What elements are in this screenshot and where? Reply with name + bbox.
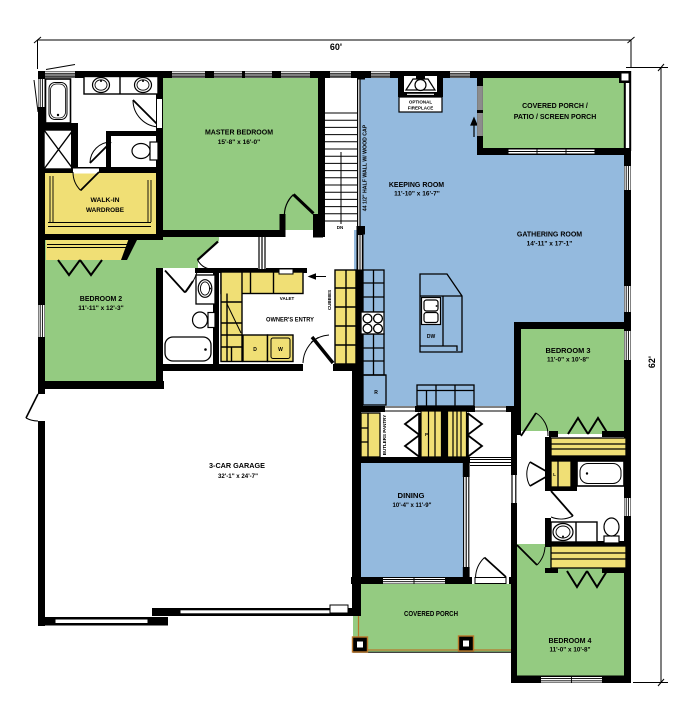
svg-text:WARDROBE: WARDROBE: [86, 207, 125, 214]
svg-text:11'-11" x 12'-3": 11'-11" x 12'-3": [78, 305, 123, 312]
svg-text:62': 62': [647, 356, 657, 368]
svg-text:D: D: [253, 347, 257, 353]
svg-text:VALET: VALET: [280, 296, 295, 301]
svg-text:BEDROOM 4: BEDROOM 4: [549, 638, 592, 645]
svg-text:BEDROOM 3: BEDROOM 3: [546, 348, 591, 355]
svg-text:14'-11" x 17'-1": 14'-11" x 17'-1": [527, 241, 573, 248]
svg-text:11'-10" x 16'-7": 11'-10" x 16'-7": [394, 191, 440, 198]
svg-text:L: L: [553, 472, 556, 477]
svg-text:DN: DN: [337, 225, 344, 230]
svg-text:WALK-IN: WALK-IN: [91, 197, 120, 204]
svg-text:DINING: DINING: [398, 493, 426, 500]
svg-text:DW: DW: [427, 334, 436, 340]
svg-text:W: W: [278, 347, 283, 353]
svg-text:11'-0" x 10'-8": 11'-0" x 10'-8": [547, 357, 589, 364]
svg-text:CUBBIES: CUBBIES: [327, 290, 332, 310]
svg-text:COVERED PORCH: COVERED PORCH: [404, 611, 458, 618]
svg-text:10'-4" x 11'-9": 10'-4" x 11'-9": [393, 502, 432, 509]
svg-text:OWNER'S ENTRY: OWNER'S ENTRY: [266, 317, 315, 324]
svg-text:44 1/2" HALF WALL W/ WOOD CAP: 44 1/2" HALF WALL W/ WOOD CAP: [363, 124, 369, 211]
svg-text:KEEPING ROOM: KEEPING ROOM: [389, 182, 444, 189]
svg-text:BUTLERS PANTRY: BUTLERS PANTRY: [382, 415, 387, 456]
svg-text:11'-0" x 10'-8": 11'-0" x 10'-8": [550, 647, 591, 654]
svg-text:PATIO / SCREEN PORCH: PATIO / SCREEN PORCH: [514, 114, 597, 121]
svg-text:OPTIONAL: OPTIONAL: [409, 100, 433, 105]
svg-text:COVERED PORCH /: COVERED PORCH /: [522, 103, 588, 110]
svg-text:3-CAR GARAGE: 3-CAR GARAGE: [209, 463, 265, 470]
svg-text:32'-1" x 24'-7": 32'-1" x 24'-7": [218, 473, 258, 480]
svg-text:FIREPLACE: FIREPLACE: [408, 106, 434, 111]
svg-text:R: R: [374, 390, 378, 396]
svg-text:MASTER BEDROOM: MASTER BEDROOM: [205, 130, 273, 137]
svg-text:15'-8" x 16'-0": 15'-8" x 16'-0": [218, 139, 261, 146]
svg-text:P: P: [425, 432, 428, 437]
svg-text:GATHERING ROOM: GATHERING ROOM: [517, 232, 582, 239]
svg-text:60': 60': [330, 42, 342, 52]
svg-text:BEDROOM 2: BEDROOM 2: [80, 296, 123, 303]
